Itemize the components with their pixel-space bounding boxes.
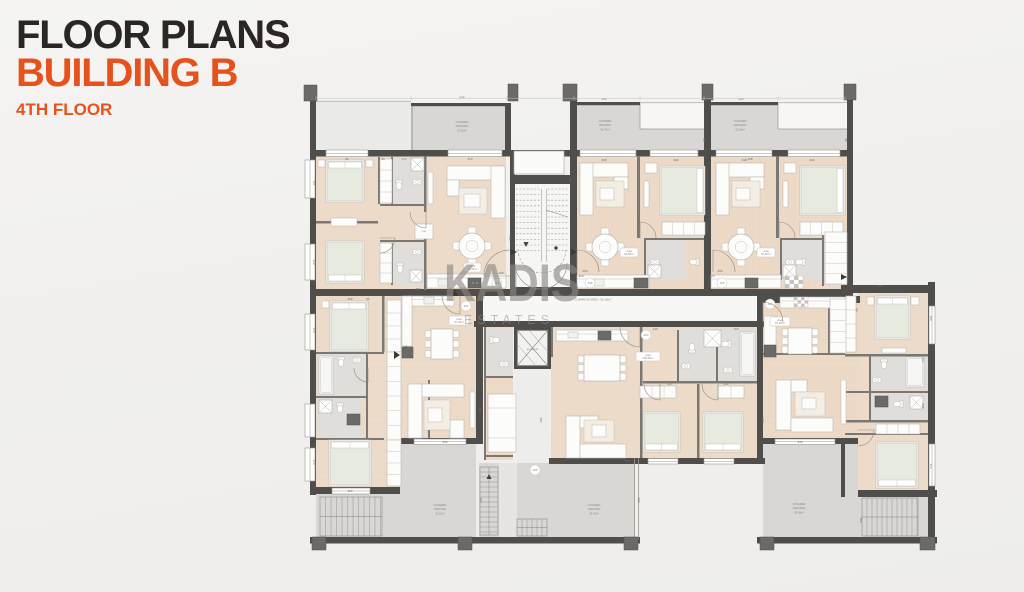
svg-text:95: 95	[844, 138, 848, 142]
svg-text:329: 329	[673, 158, 678, 162]
svg-text:60: 60	[345, 157, 349, 161]
svg-text:VERANDA: VERANDA	[734, 123, 747, 127]
svg-text:120: 120	[709, 274, 714, 278]
svg-text:320: 320	[738, 97, 743, 101]
svg-text:348: 348	[877, 284, 882, 288]
svg-text:160: 160	[733, 327, 738, 331]
svg-text:VERANDA: VERANDA	[599, 123, 612, 127]
svg-text:KADIS: KADIS	[444, 254, 580, 313]
svg-text:COVERED: COVERED	[588, 503, 601, 507]
svg-text:VERANDA: VERANDA	[793, 506, 806, 510]
svg-text:VERANDA: VERANDA	[434, 507, 447, 511]
svg-text:24,43m²: 24,43m²	[589, 512, 599, 516]
svg-text:COVERED: COVERED	[456, 120, 469, 124]
svg-text:348: 348	[624, 459, 629, 463]
svg-text:W/M: W/M	[422, 231, 427, 233]
svg-text:217: 217	[667, 382, 672, 386]
svg-text:403: 403	[479, 497, 483, 502]
svg-text:408: 408	[587, 281, 592, 285]
svg-text:319: 319	[312, 259, 316, 264]
svg-text:373: 373	[929, 463, 933, 468]
svg-text:267: 267	[921, 357, 925, 362]
svg-text:95: 95	[568, 178, 572, 182]
svg-text:446: 446	[508, 235, 512, 240]
svg-text:348: 348	[741, 158, 746, 162]
svg-text:COMMON AREA / 33.18m²: COMMON AREA / 33.18m²	[575, 298, 611, 302]
svg-text:369: 369	[347, 297, 352, 301]
svg-text:348: 348	[601, 158, 606, 162]
svg-text:31,70m²: 31,70m²	[600, 128, 610, 132]
svg-text:370: 370	[312, 327, 316, 332]
svg-text:VERANDA: VERANDA	[456, 124, 469, 128]
svg-text:365: 365	[637, 497, 641, 502]
svg-text:403: 403	[539, 417, 543, 422]
svg-text:403: 403	[643, 333, 648, 337]
svg-text:172: 172	[401, 157, 406, 161]
svg-text:340: 340	[797, 440, 802, 444]
svg-text:290: 290	[582, 269, 587, 273]
svg-text:405: 405	[478, 407, 482, 412]
svg-text:14,83m²: 14,83m²	[457, 129, 467, 133]
svg-text:310: 310	[723, 382, 728, 386]
svg-text:95: 95	[702, 138, 706, 142]
svg-text:405: 405	[532, 468, 537, 472]
svg-text:406: 406	[719, 281, 724, 285]
svg-text:93: 93	[855, 308, 859, 312]
svg-text:369: 369	[347, 489, 352, 493]
svg-text:508: 508	[459, 96, 464, 100]
svg-text:348: 348	[747, 157, 752, 161]
svg-text:351: 351	[312, 180, 316, 185]
svg-text:ELEVATOR: ELEVATOR	[527, 348, 539, 351]
svg-text:52,65m²: 52,65m²	[761, 252, 771, 256]
svg-text:13,64m²: 13,64m²	[735, 128, 745, 132]
svg-text:290: 290	[717, 269, 722, 273]
svg-text:329: 329	[809, 158, 814, 162]
svg-text:COVERED: COVERED	[599, 119, 612, 123]
svg-text:335: 335	[601, 97, 606, 101]
svg-text:55: 55	[366, 297, 370, 301]
svg-text:VERANDA: VERANDA	[588, 507, 601, 511]
svg-text:201: 201	[921, 403, 925, 408]
svg-text:373: 373	[312, 459, 316, 464]
svg-text:60: 60	[381, 157, 385, 161]
svg-text:28,05m²: 28,05m²	[794, 511, 804, 515]
svg-text:140: 140	[652, 327, 657, 331]
svg-text:ESTATES: ESTATES	[464, 313, 554, 327]
svg-text:250: 250	[859, 517, 863, 522]
svg-text:378: 378	[761, 417, 765, 422]
svg-text:81,30m²: 81,30m²	[775, 321, 785, 325]
svg-text:52,65m²: 52,65m²	[624, 252, 634, 256]
svg-text:COVERED: COVERED	[734, 119, 747, 123]
svg-text:COVERED: COVERED	[434, 503, 447, 507]
svg-text:360: 360	[929, 315, 933, 320]
svg-text:106,90m²: 106,90m²	[643, 356, 654, 360]
svg-text:81,18m²: 81,18m²	[454, 320, 464, 324]
svg-text:366: 366	[442, 440, 447, 444]
svg-text:419: 419	[467, 157, 472, 161]
svg-text:366: 366	[415, 287, 420, 291]
svg-text:COVERED: COVERED	[793, 502, 806, 506]
svg-text:28,23m²: 28,23m²	[435, 512, 445, 516]
